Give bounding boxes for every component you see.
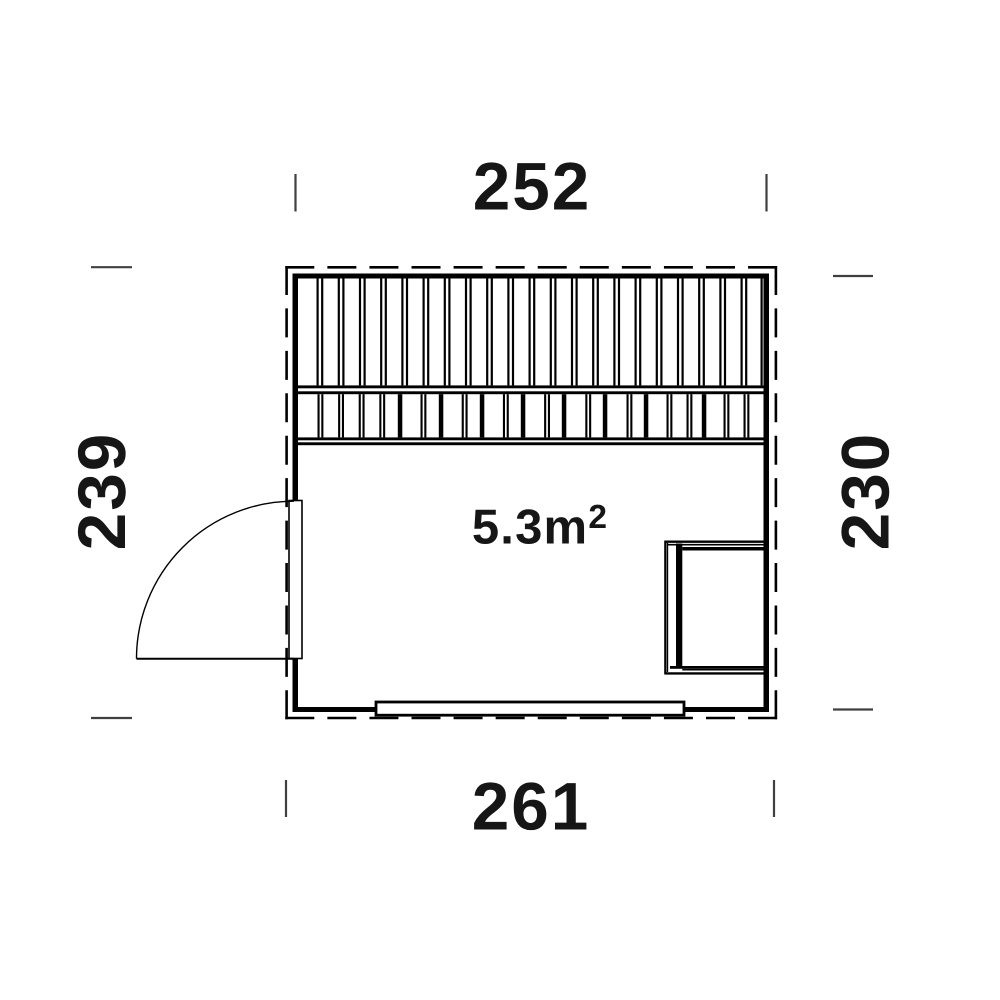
svg-text:239: 239 [65, 432, 140, 551]
svg-text:5.3m2: 5.3m2 [472, 499, 608, 555]
svg-text:252: 252 [473, 150, 592, 225]
svg-text:261: 261 [472, 769, 591, 844]
svg-text:230: 230 [829, 432, 904, 551]
